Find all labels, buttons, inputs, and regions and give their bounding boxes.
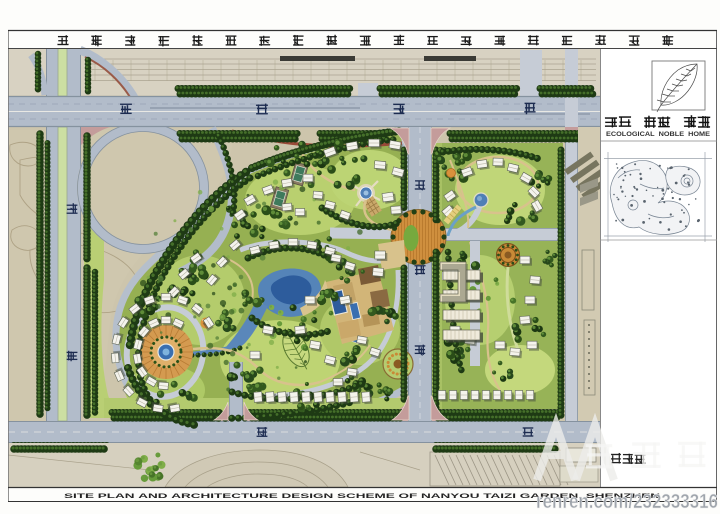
svg-text:ECOLOGICAL NOBLE HOME: ECOLOGICAL NOBLE HOME (606, 131, 710, 138)
svg-text:renren.com/232333316: renren.com/232333316 (536, 490, 718, 513)
